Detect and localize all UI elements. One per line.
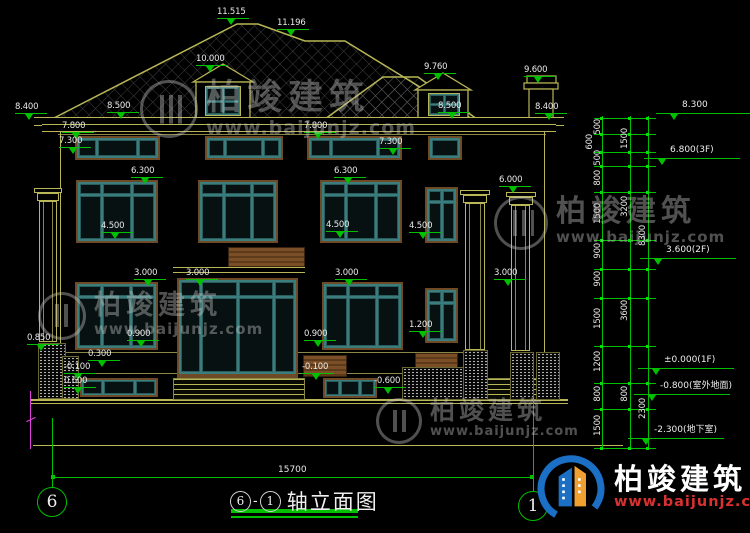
vertical-dim: 600 [585, 134, 595, 150]
dimension-label: 0.900 [304, 330, 340, 341]
dormer-left-window [205, 86, 241, 116]
dimension-label: 7.300 [379, 138, 415, 149]
dimension-label: 11.515 [217, 8, 253, 19]
window-3f-small [425, 187, 458, 243]
dimension-label: 8.400 [535, 103, 571, 114]
eave-cornice-lower [42, 124, 556, 132]
dimension-label: -0.600 [374, 377, 410, 388]
dimension-label: 6.300 [334, 167, 370, 178]
dimension-label: 4.500 [409, 222, 445, 233]
pilaster-left-shaft [39, 201, 57, 342]
dim-tick [594, 192, 656, 193]
dimension-label: 7.300 [59, 137, 95, 148]
pilaster-midright-neck [463, 195, 487, 203]
title-underline-thin [231, 516, 358, 518]
title-text: 轴立面图 [287, 486, 379, 516]
stone-base-right [510, 352, 534, 400]
footer-brand: 柏竣建筑 www.baijunjz.com [534, 450, 750, 524]
vertical-dim: 1500 [593, 415, 603, 436]
vertical-dim: 1200 [593, 351, 603, 372]
stone-base-midright [463, 350, 488, 400]
window-2f-small [425, 288, 458, 343]
elevation-marker: -0.800(室外地面) [646, 381, 750, 391]
dimension-label: 7.800 [62, 122, 98, 133]
dim-tick [594, 118, 656, 119]
dimension-label: 0.300 [88, 350, 124, 361]
title-dash: - [253, 494, 258, 509]
axis-bubble-6: 6 [37, 487, 67, 517]
dimension-label: 6.300 [131, 167, 167, 178]
dimension-label: 6.000 [499, 176, 535, 187]
window-3f-right [320, 180, 402, 243]
dimension-label: 8.500 [107, 102, 143, 113]
overall-dim-tick-left [51, 475, 55, 479]
dimension-label: 4.500 [326, 221, 362, 232]
awning-slats [228, 247, 305, 267]
basement-window-center [323, 378, 377, 398]
vertical-dim: 8300 [638, 225, 648, 246]
dimension-label: 3.000 [335, 269, 371, 280]
chimney-cap [524, 83, 558, 89]
dimension-label: 1.200 [409, 321, 445, 332]
wall-top-line [58, 134, 546, 135]
elevation-marker: ±0.000(1F) [650, 355, 750, 365]
dimension-label: -0.100 [64, 363, 100, 374]
vertical-dim: 2300 [638, 398, 648, 419]
vertical-dim: 1500 [593, 308, 603, 329]
vertical-dim: 1500 [593, 203, 603, 224]
dimension-label: 11.196 [277, 19, 313, 30]
dimension-label: 8.500 [438, 102, 474, 113]
elevation-marker: 8.300 [668, 100, 750, 110]
pilaster-right-neck [509, 197, 533, 205]
vertical-dim: 3200 [620, 196, 630, 217]
pilaster-left-neck [37, 193, 59, 201]
vertical-dim: 800 [593, 386, 603, 402]
vertical-dim: 3600 [620, 300, 630, 321]
elevation-marker: 6.800(3F) [656, 145, 750, 155]
dim-tick [594, 152, 656, 153]
vertical-dim: 500 [593, 119, 603, 135]
dim-tick [594, 269, 656, 270]
vertical-dim: 800 [593, 170, 603, 186]
elevation-marker: 3.600(2F) [652, 245, 750, 255]
footer-brand-name: 柏竣建筑 [614, 465, 750, 494]
overall-width-dim: 15700 [278, 465, 307, 475]
dimension-label: 0.850 [27, 334, 63, 345]
entry-steps [173, 378, 305, 400]
cad-elevation-drawing: 11.515 11.196 10.000 8.400 8.500 9.760 9… [0, 0, 750, 533]
pilaster-midright-shaft [465, 203, 485, 350]
vertical-dim: 900 [593, 243, 603, 259]
dimension-label: 10.000 [196, 55, 232, 66]
strip-window-2 [205, 136, 283, 160]
vertical-dim: 500 [593, 150, 603, 166]
vertical-dim: 900 [593, 271, 603, 287]
vertical-dim: 1500 [620, 128, 630, 149]
window-3f-center [198, 180, 278, 243]
dimension-label: 3.000 [494, 269, 530, 280]
title-axis-left: 6 [230, 491, 251, 512]
basement-ground-line [33, 445, 623, 446]
brand-logo-icon [534, 450, 608, 524]
dimension-label: 4.500 [101, 222, 137, 233]
dimension-label: 7.800 [304, 122, 340, 133]
dim-tick [594, 166, 656, 167]
strip-window-4 [428, 136, 462, 160]
sunroom-glazed-door [177, 278, 298, 378]
stone-corner-right [536, 352, 560, 400]
title-axis-right: 1 [260, 491, 281, 512]
dimension-label: 9.760 [424, 63, 460, 74]
vertical-dim: 800 [620, 386, 630, 402]
elevation-marker: -2.300(地下室) [640, 425, 750, 435]
dimension-label: 8.400 [15, 103, 51, 114]
overall-dim-line [53, 477, 533, 478]
dimension-label: 0.900 [127, 330, 163, 341]
dim-tick [594, 298, 656, 299]
ground-line-lower [30, 403, 568, 404]
dimension-label: 9.600 [524, 66, 560, 77]
dimension-label: 3.000 [186, 269, 222, 280]
dimension-label: 0.600 [64, 377, 100, 388]
dimension-label: 3.000 [134, 269, 170, 280]
drawing-title: 6 - 1 轴立面图 [230, 486, 379, 516]
footer-brand-url: www.baijunjz.com [614, 494, 750, 510]
dimension-label: -0.100 [302, 363, 338, 374]
stone-wall-center [402, 367, 466, 400]
dim-tick [594, 346, 656, 347]
dim-tick [594, 448, 656, 449]
